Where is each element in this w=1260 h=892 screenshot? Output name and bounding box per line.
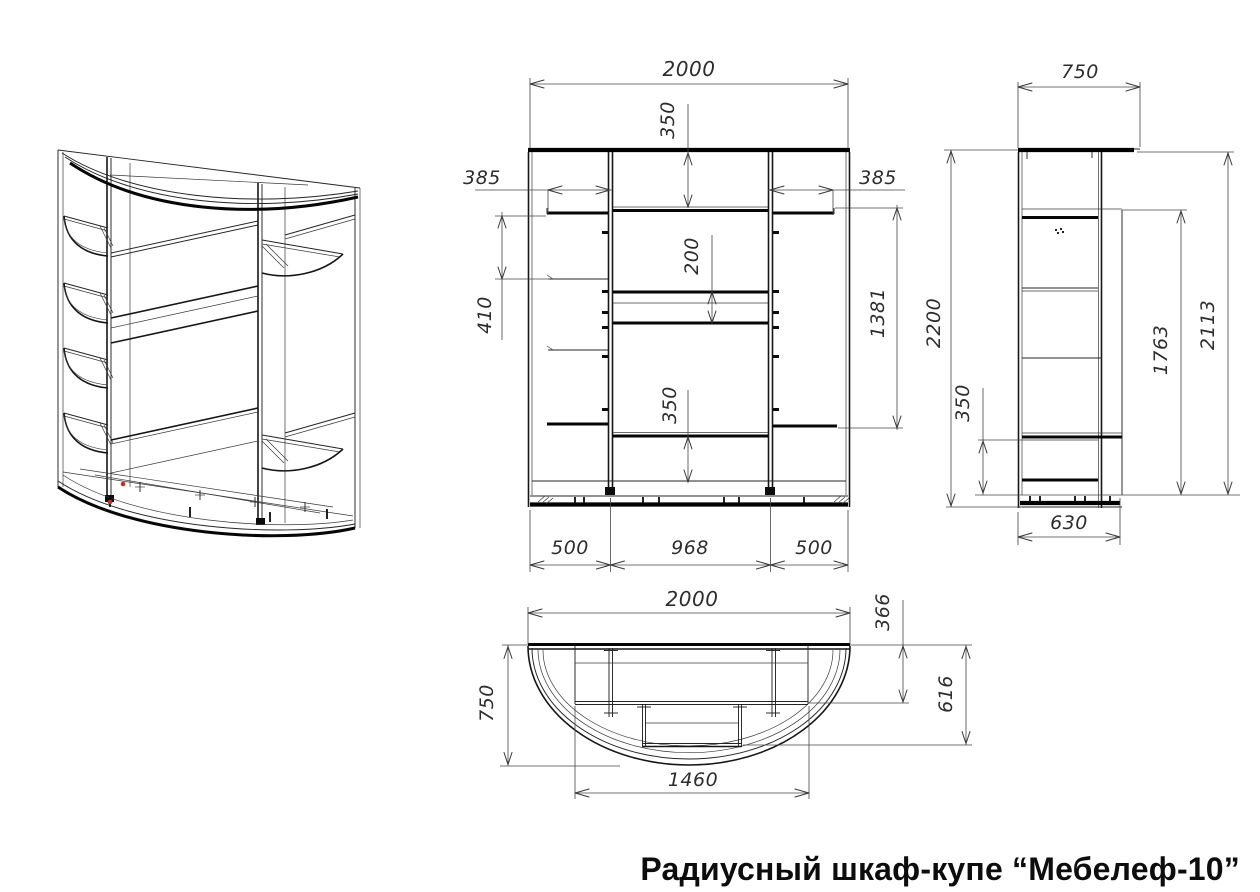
- dim-front-overall-width: 2000: [663, 57, 716, 81]
- dim-front-lower-shelf-gap: 350: [659, 386, 681, 424]
- dim-front-right-bay: 500: [795, 537, 833, 559]
- dim-plan-side-section-depth: 366: [872, 593, 894, 631]
- dim-plan-center-section-depth: 616: [935, 675, 957, 713]
- top-plan-view: 2000 750 366 616 1460: [460, 580, 980, 860]
- dim-plan-front-opening: 1460: [668, 769, 718, 791]
- dim-front-left-shelf-width: 385: [463, 167, 501, 189]
- plan-carcass: [528, 645, 850, 766]
- front-elevation-view: 2000 350 385 385 410 200: [440, 40, 920, 580]
- dim-front-drawer-opening: 200: [681, 237, 703, 275]
- drawing-title: Радиусный шкаф-купе “Мебелеф-10”: [640, 851, 1240, 888]
- dim-side-carcass-depth: 630: [1050, 512, 1088, 534]
- dim-side-overall-height: 2200: [923, 298, 945, 348]
- dim-front-hanging-space: 1381: [867, 288, 889, 338]
- hardware-marker-red: [121, 482, 126, 487]
- dim-side-top-depth: 750: [1061, 61, 1099, 83]
- side-base: [975, 495, 1240, 507]
- iso-right-shelves: [262, 215, 355, 471]
- iso-base: [58, 469, 355, 536]
- hardware-marker-red: [108, 500, 113, 505]
- dim-front-left-shelf-spacing: 410: [474, 296, 496, 334]
- iso-left-curved-shelves: [64, 216, 113, 453]
- blueprint-page: 2000 350 385 385 410 200: [0, 0, 1260, 892]
- plan-dimensions: 2000 750 366 616 1460: [476, 587, 972, 799]
- iso-carcass: [58, 150, 360, 528]
- side-carcass: [1018, 149, 1140, 508]
- front-dimensions: 2000 350 385 385 410 200: [463, 57, 905, 572]
- dim-plan-overall-depth: 750: [476, 684, 498, 722]
- dim-front-center-bay: 968: [671, 537, 709, 559]
- dim-plan-overall-width: 2000: [666, 587, 719, 611]
- side-dimensions: 750 2200 1763 2113 350: [923, 61, 1234, 545]
- side-shelves: [1022, 209, 1122, 480]
- dim-side-interior-height: 1763: [1150, 325, 1172, 375]
- dim-side-bottom-shelf-gap: 350: [952, 384, 974, 422]
- dim-front-right-shelf-width: 385: [859, 167, 897, 189]
- side-elevation-view: 750 2200 1763 2113 350: [930, 40, 1260, 580]
- dim-front-top-shelf: 350: [657, 101, 679, 139]
- front-base: [530, 496, 849, 505]
- isometric-view: [40, 135, 400, 555]
- dim-side-carcass-height: 2113: [1197, 300, 1219, 350]
- dim-front-left-bay: 500: [551, 537, 589, 559]
- iso-center-shelves: [111, 221, 258, 473]
